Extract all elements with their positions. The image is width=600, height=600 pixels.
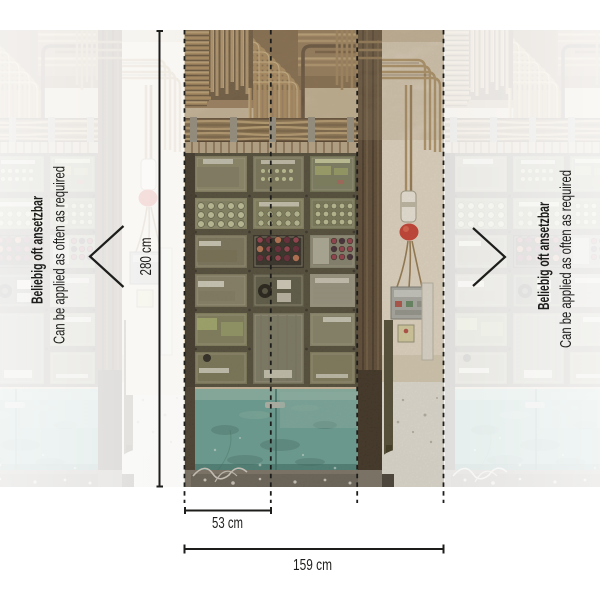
svg-text:280 cm: 280 cm (138, 238, 155, 276)
svg-text:159 cm: 159 cm (293, 557, 332, 574)
svg-text:Can be applied as often as req: Can be applied as often as required (558, 170, 575, 348)
svg-text:Beliebig oft ansetzbar: Beliebig oft ansetzbar (536, 202, 553, 310)
svg-text:Can be applied as often as req: Can be applied as often as required (52, 166, 69, 344)
svg-text:53 cm: 53 cm (212, 515, 243, 532)
svg-text:Beliebig oft ansetzbar: Beliebig oft ansetzbar (30, 196, 47, 304)
